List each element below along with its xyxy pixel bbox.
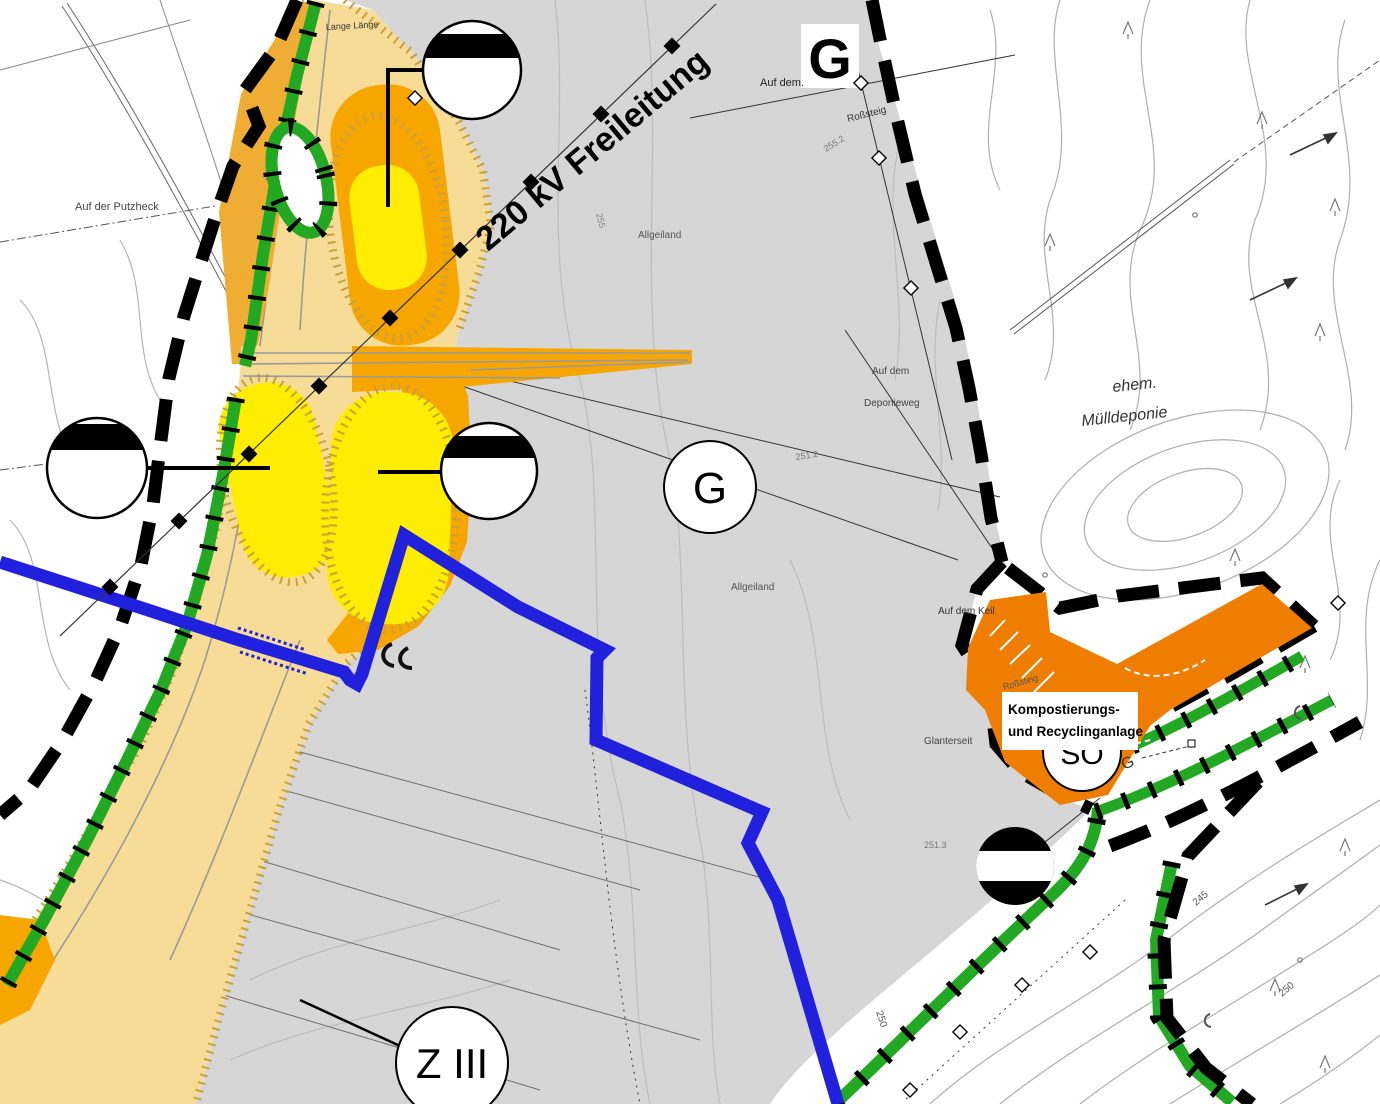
label-auf-dem: Auf dem. [760,77,804,89]
label-putzheck: Auf der Putzheck [75,201,159,213]
zone-circle-g: G [664,441,756,533]
label-glanterseit: Glanterseit [924,736,973,747]
zone-g-top-label: G [808,27,852,90]
map-canvas: 220 kV Freileitung G SO Z III G [0,0,1380,1104]
zone-g-label: G [693,464,727,513]
banded-circle-symbol-left [44,418,150,518]
banded-circle-symbol-top [420,21,524,119]
label-keil: Auf dem Keil [938,606,995,617]
label-elev-2513: 251.3 [924,840,947,850]
compost-label-box: Kompostierungs- und Recyclinganlage [1002,692,1144,750]
zoning-plan-map: 220 kV Freileitung G SO Z III G [0,0,1380,1104]
label-allgeiland-1: Allgeiland [638,230,681,241]
zone-box-g-top: G [801,24,859,90]
compost-label-line1: Kompostierungs- [1008,702,1120,717]
compost-label-line2: und Recyclinganlage [1008,724,1144,739]
zone-z3-label: Z III [416,1040,488,1087]
label-deponieweg-1: Auf dem [872,366,909,377]
banded-circle-symbol-mid [438,423,540,519]
label-allgeiland-2: Allgeiland [731,582,774,593]
label-deponieweg-2: Deponieweg [864,398,920,409]
